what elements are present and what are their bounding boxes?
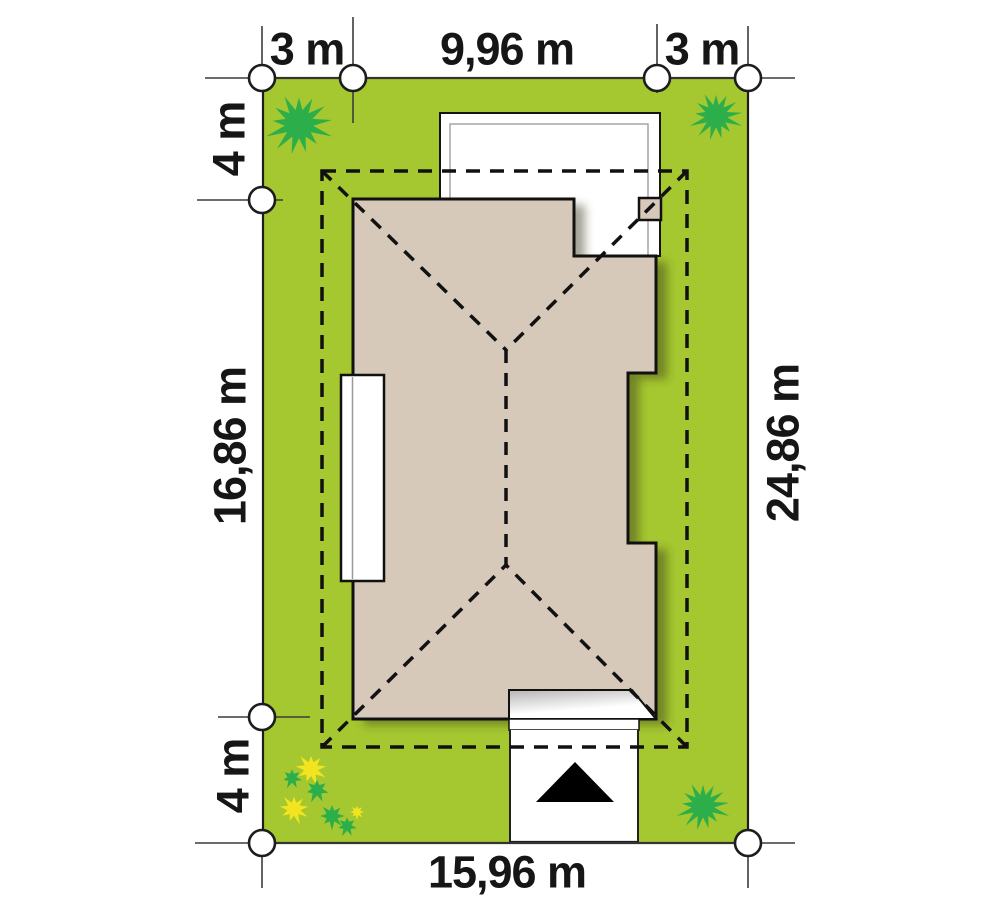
site-plan-drawing [0, 0, 1000, 911]
dimension-label-plot-depth: 24,86 m [761, 364, 806, 522]
dimension-label-house-width: 9,96 m [440, 27, 574, 72]
survey-marker-icon [249, 830, 275, 856]
dimension-label-plot-width: 15,96 m [428, 850, 586, 895]
dimension-label-front-setback: 4 m [207, 102, 252, 177]
dimension-label-left-side-setback: 3 m [270, 27, 345, 72]
window-bay [341, 375, 384, 581]
dimension-label-rear-setback: 4 m [211, 739, 256, 814]
survey-marker-icon [249, 187, 275, 213]
survey-marker-icon [735, 830, 761, 856]
site-plan: 3 m 9,96 m 3 m 4 m 16,86 m 4 m 24,86 m 1… [0, 0, 1000, 911]
survey-marker-icon [249, 704, 275, 730]
house-roof [353, 199, 656, 719]
porch-step [509, 719, 639, 730]
dimension-label-house-depth: 16,86 m [208, 367, 253, 525]
dimension-label-right-side-setback: 3 m [665, 27, 740, 72]
